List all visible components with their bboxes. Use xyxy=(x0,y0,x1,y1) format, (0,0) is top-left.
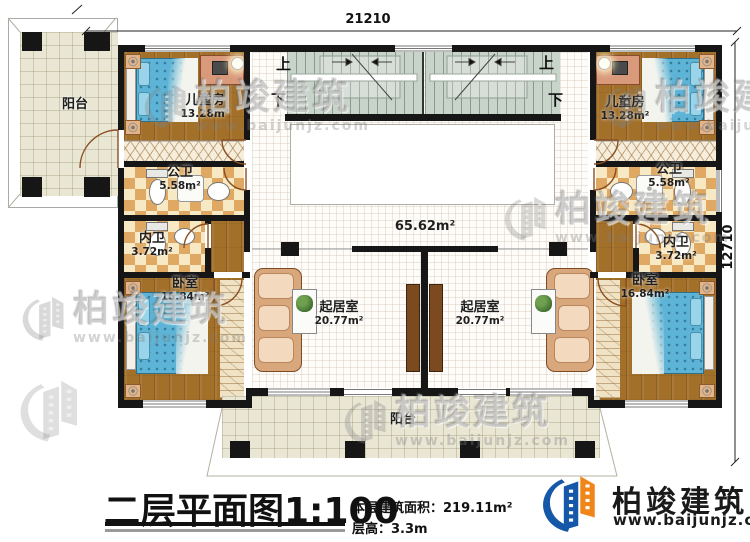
tv-cabinet-right xyxy=(429,284,443,372)
sofa-cushion xyxy=(554,273,590,299)
bed-headboard xyxy=(704,296,714,370)
pillow xyxy=(690,92,702,116)
brand-logo xyxy=(536,470,604,540)
room-label-balcony-left: 阳台 xyxy=(50,98,100,113)
potted-plant xyxy=(535,295,552,312)
floor-area-value: 219.11m² xyxy=(443,501,512,516)
nightstand-lamp xyxy=(125,120,141,135)
room-label-balcony-bottom: 阳台 xyxy=(378,413,428,428)
title-underline-2 xyxy=(105,529,345,532)
watermark-building-icon xyxy=(18,292,70,344)
closet-left xyxy=(124,141,244,161)
floor-height-label: 层高： xyxy=(352,522,391,537)
bed-blanket xyxy=(176,292,208,374)
dimension-height-label: 12710 xyxy=(721,219,735,275)
dimension-width-label: 21210 xyxy=(340,12,396,27)
pillow xyxy=(138,332,150,360)
floor-area-info: 本层建筑面积：219.11m² xyxy=(352,497,512,516)
computer-monitor xyxy=(612,61,628,75)
room-label-public-bath-left: 公卫5.58m² xyxy=(145,166,215,192)
wardrobe-left xyxy=(220,280,244,398)
stair-up-label-right: 上 xyxy=(539,52,554,73)
nightstand-lamp xyxy=(125,54,141,69)
brand-url: www.baijunjz.com xyxy=(613,511,750,529)
sofa-cushion xyxy=(558,305,590,331)
bed-blanket xyxy=(632,292,664,374)
room-label-child-left: 儿童房13.28m² xyxy=(167,94,243,120)
tv-cabinet-left xyxy=(406,284,420,372)
sofa-cushion xyxy=(258,337,294,363)
nightstand-lamp xyxy=(125,384,141,398)
stairwell-void xyxy=(290,124,555,205)
closet-right xyxy=(596,141,716,161)
pillow xyxy=(138,92,150,116)
toilet xyxy=(146,222,168,231)
room-label-bedroom-left: 卧室16.84m² xyxy=(150,277,220,303)
title-underline xyxy=(105,522,345,526)
room-label-public-bath-right: 公卫5.58m² xyxy=(634,163,704,189)
pillow xyxy=(690,332,702,360)
sink xyxy=(610,182,633,201)
desk-lamp xyxy=(598,57,611,70)
pillow xyxy=(690,298,702,326)
watermark-building-icon xyxy=(14,374,86,446)
balcony-left-floor xyxy=(20,32,118,196)
bed-headboard xyxy=(126,296,136,370)
sofa-cushion xyxy=(554,337,590,363)
vestibule-left-floor xyxy=(211,221,244,272)
brand-building-icon xyxy=(536,470,604,536)
room-label-child-right: 儿童房13.28m² xyxy=(587,96,663,122)
sofa-cushion xyxy=(258,305,290,331)
pillow xyxy=(138,298,150,326)
nightstand-lamp xyxy=(699,120,715,135)
nightstand-lamp xyxy=(699,54,715,69)
stair-down-label-left: 下 xyxy=(271,89,286,110)
room-label-living-left: 起居室20.77m² xyxy=(304,301,374,327)
stair-up-label-left: 上 xyxy=(276,53,291,74)
nightstand-lamp xyxy=(125,281,141,295)
room-label-inner-bath-left: 内卫3.72m² xyxy=(117,232,187,258)
floor-height-value: 3.3m xyxy=(391,522,428,537)
desk-lamp xyxy=(231,57,244,70)
vestibule-right-floor xyxy=(596,221,633,272)
floor-area-label: 本层建筑面积： xyxy=(352,501,443,516)
floor-plan-canvas: 21210 12710 上 下 上 下 阳台 儿童房13.28m² 儿童房13.… xyxy=(0,0,750,542)
toilet xyxy=(672,222,694,231)
stair-down-label-right: 下 xyxy=(548,89,563,110)
staircase-left xyxy=(287,52,422,114)
room-label-living-right: 起居室20.77m² xyxy=(445,301,515,327)
floor-height-info: 层高：3.3m xyxy=(352,518,428,537)
nightstand-lamp xyxy=(699,384,715,398)
sofa-cushion xyxy=(258,273,294,299)
room-label-inner-bath-right: 内卫3.72m² xyxy=(641,236,711,262)
computer-monitor xyxy=(212,61,228,75)
watermark-glyph-only xyxy=(14,374,86,446)
nightstand-lamp xyxy=(699,281,715,295)
hall-area-label: 65.62m² xyxy=(385,220,465,235)
room-label-bedroom-right: 卧室16.84m² xyxy=(610,274,680,300)
